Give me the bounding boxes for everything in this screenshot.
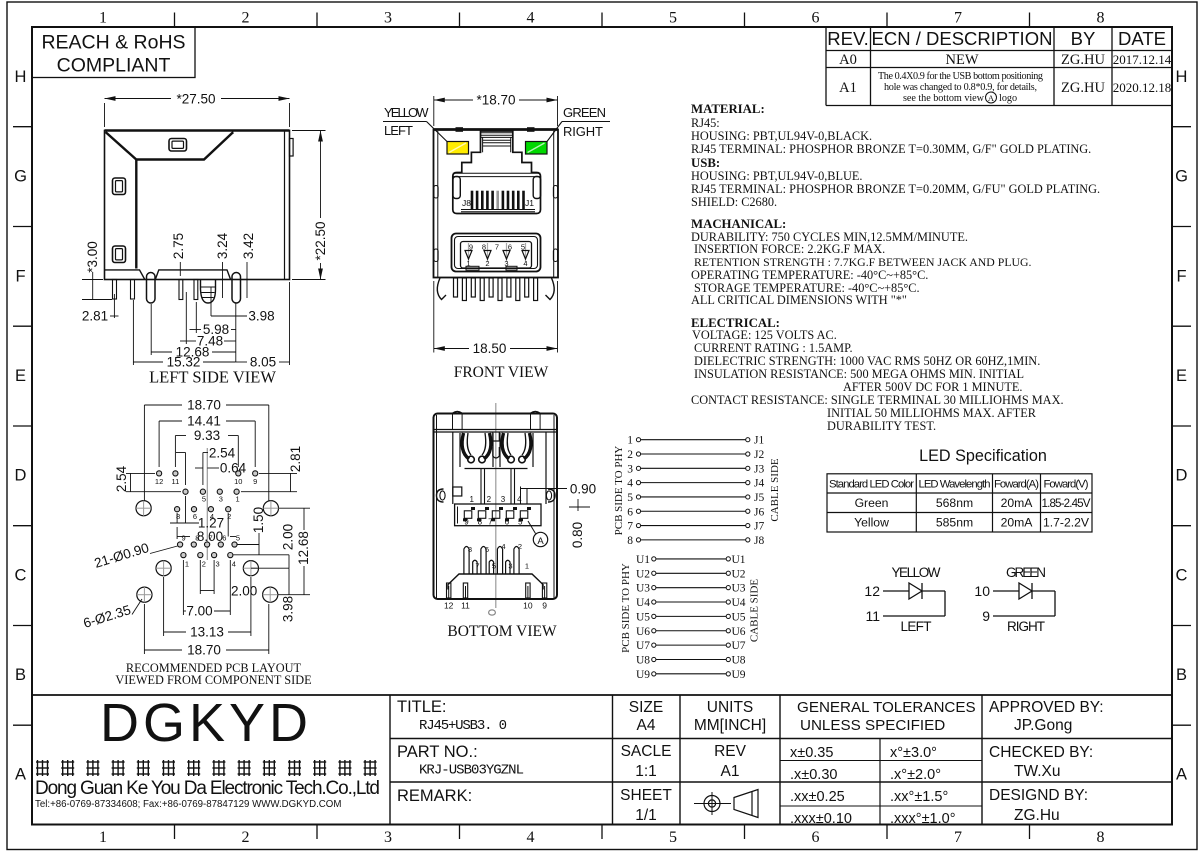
svg-text:J8: J8 [754,535,764,547]
svg-text:2020.12.18: 2020.12.18 [1113,80,1172,95]
svg-text:5: 5 [669,829,677,846]
svg-text:D: D [15,467,27,485]
svg-text:.xxx°±1.0°: .xxx°±1.0° [890,811,956,827]
svg-text:18.70: 18.70 [187,398,221,413]
svg-text:U1: U1 [732,554,746,566]
svg-text:3.98: 3.98 [248,309,274,324]
svg-text:HOUSING: PBT,UL94V-0,BLACK.: HOUSING: PBT,UL94V-0,BLACK. [691,129,872,143]
svg-text:1: 1 [236,495,240,504]
svg-text:2017.12.14: 2017.12.14 [1113,52,1172,67]
svg-text:Foward(A): Foward(A) [994,479,1039,491]
svg-text:A1: A1 [721,763,740,780]
svg-text:G: G [1175,168,1188,186]
svg-text:2.75: 2.75 [171,233,186,259]
svg-text:J1: J1 [754,435,764,447]
svg-text:A0: A0 [839,52,857,68]
svg-text:H: H [15,68,27,86]
svg-text:J5: J5 [754,492,764,504]
svg-text:UNITS: UNITS [707,699,754,716]
svg-text:4: 4 [527,10,535,27]
svg-text:CURRENT RATING : 1.5AMP.: CURRENT RATING : 1.5AMP. [694,341,853,355]
svg-text:U7: U7 [732,640,746,652]
svg-text:ALL CRITICAL DIMENSIONS WITH ": ALL CRITICAL DIMENSIONS WITH "*" [691,293,907,307]
svg-text:1: 1 [99,829,107,846]
svg-text:3.42: 3.42 [241,233,256,259]
svg-text:U9: U9 [732,669,746,681]
svg-text:U8: U8 [732,654,746,666]
svg-text:2: 2 [202,560,206,569]
svg-text:5: 5 [492,562,496,571]
svg-text:11: 11 [865,608,880,624]
svg-text:RETENTION STRENGTH : 7.7KG.F B: RETENTION STRENGTH : 7.7KG.F BETWEEN JAC… [694,255,1032,269]
svg-text:F: F [15,268,25,286]
svg-text:USB:: USB: [691,156,720,170]
svg-text:x±0.35: x±0.35 [790,745,833,761]
svg-text:GREEN: GREEN [1006,565,1046,580]
svg-text:MATERIAL:: MATERIAL: [691,102,765,116]
svg-text:9: 9 [464,518,469,527]
svg-text:DURABILITY TEST.: DURABILITY TEST. [827,419,936,433]
svg-text:J6: J6 [754,506,764,518]
svg-text:10: 10 [523,601,533,611]
svg-text:8: 8 [176,512,180,521]
svg-text:7.00: 7.00 [186,604,212,619]
svg-text:Green: Green [855,496,889,510]
svg-text:A: A [537,536,544,547]
svg-text:9: 9 [542,601,547,611]
svg-text:20mA: 20mA [1001,516,1034,530]
svg-text:PCB SIDE TO PHY: PCB SIDE TO PHY [620,563,632,653]
svg-text:7: 7 [954,10,962,27]
svg-text:9: 9 [253,477,257,486]
svg-text:12.68: 12.68 [296,531,311,565]
svg-text:*3.00: *3.00 [85,241,100,273]
svg-text:U2: U2 [636,568,650,580]
svg-text:REMARK:: REMARK: [397,787,472,805]
svg-text:D: D [1176,467,1188,485]
svg-text:1: 1 [627,435,633,447]
svg-text:AFTER 500V DC FOR 1 MINUTE.: AFTER 500V DC FOR 1 MINUTE. [843,380,1022,394]
svg-text:E: E [1176,367,1187,385]
svg-text:see the bottom view: see the bottom view [903,93,985,104]
svg-text:0.90: 0.90 [570,482,596,497]
svg-text:9: 9 [982,608,990,624]
svg-text:YELLOW: YELLOW [892,565,941,580]
svg-text:6: 6 [193,512,197,521]
svg-text:3.24: 3.24 [215,232,230,259]
svg-text:SHIELD: C2680.: SHIELD: C2680. [691,195,777,209]
svg-text:8: 8 [468,545,472,554]
svg-text:U6: U6 [732,626,746,638]
svg-text:8: 8 [1097,10,1105,27]
svg-text:5: 5 [627,492,633,504]
svg-text:Foward(V): Foward(V) [1044,479,1089,491]
svg-text:8.00: 8.00 [197,529,223,544]
svg-text:11: 11 [461,601,470,611]
svg-text:HOUSING: PBT,UL94V-0,BLUE.: HOUSING: PBT,UL94V-0,BLUE. [691,169,862,183]
svg-text:J7: J7 [754,521,764,533]
svg-text:U4: U4 [732,597,746,609]
svg-text:CABLE SIDE: CABLE SIDE [749,579,761,643]
svg-text:3: 3 [216,560,220,569]
svg-text:585nm: 585nm [936,516,973,530]
svg-text:1: 1 [99,10,107,27]
svg-text:E: E [15,367,26,385]
svg-text:RIGHT: RIGHT [1007,619,1045,634]
svg-text:0.64: 0.64 [220,461,247,476]
svg-text:1:1: 1:1 [635,763,657,780]
svg-text:ZG.HU: ZG.HU [1061,80,1105,96]
svg-text:FRONT VIEW: FRONT VIEW [454,364,549,381]
svg-text:3: 3 [384,10,392,27]
svg-text:J8: J8 [462,198,471,208]
svg-text:ECN / DESCRIPTION: ECN / DESCRIPTION [872,28,1053,49]
svg-text:5: 5 [202,495,206,504]
svg-text:ZG.HU: ZG.HU [1061,52,1105,68]
svg-text:GENERAL TOLERANCES: GENERAL TOLERANCES [797,699,976,716]
svg-text:OPERATING TEMPERATURE: -40°C~+: OPERATING TEMPERATURE: -40°C~+85°C. [691,268,928,282]
svg-text:RJ45 TERMINAL: PHOSPHOR BRONZE: RJ45 TERMINAL: PHOSPHOR BRONZE T=0.30MM,… [691,142,1091,156]
svg-text:J2: J2 [754,449,764,461]
svg-text:TW.Xu: TW.Xu [1014,763,1061,780]
svg-text:Standard LED Color: Standard LED Color [829,479,914,491]
svg-text:20mA: 20mA [1001,496,1034,510]
svg-text:SIZE: SIZE [629,699,663,716]
svg-text:7: 7 [488,518,493,527]
svg-text:1.85-2.45V: 1.85-2.45V [1042,497,1091,510]
svg-text:x°±3.0°: x°±3.0° [890,745,937,761]
svg-text:A1: A1 [839,80,857,96]
svg-text:COMPLIANT: COMPLIANT [57,55,171,77]
svg-text:18.50: 18.50 [473,341,507,356]
svg-text:DIELECTRIC STRENGTH: 1000 VAC: DIELECTRIC STRENGTH: 1000 VAC RMS 50HZ O… [694,354,1040,368]
svg-text:MM[INCH]: MM[INCH] [694,717,766,734]
svg-text:7: 7 [495,243,499,252]
svg-text:U4: U4 [636,597,650,609]
svg-text:*27.50: *27.50 [176,92,215,107]
svg-text:PART NO.:: PART NO.: [397,743,478,761]
svg-text:U2: U2 [732,568,746,580]
svg-text:F: F [1176,268,1186,286]
svg-text:2.81: 2.81 [288,446,303,472]
svg-text:U5: U5 [636,611,650,623]
svg-text:.x°±2.0°: .x°±2.0° [890,767,941,783]
svg-text:REV: REV [714,743,747,760]
svg-text:SHEET: SHEET [620,787,672,804]
svg-text:ZG.Hu: ZG.Hu [1014,807,1060,824]
svg-text:2: 2 [227,512,231,521]
svg-text:Tel:+86-0769-87334608; Fax:+86: Tel:+86-0769-87334608; Fax:+86-0769-8784… [35,799,341,810]
svg-text:CABLE SIDE: CABLE SIDE [769,458,781,522]
svg-text:9: 9 [182,534,186,543]
svg-text:9.33: 9.33 [194,428,220,443]
svg-text:1/1: 1/1 [635,807,657,824]
svg-text:U7: U7 [636,640,650,652]
svg-text:10: 10 [974,583,990,599]
svg-text:SACLE: SACLE [621,743,672,760]
svg-text:U3: U3 [636,583,650,595]
svg-text:U1: U1 [636,554,650,566]
svg-text:LEFT: LEFT [901,619,932,634]
svg-text:1: 1 [525,562,529,571]
svg-text:12: 12 [444,601,454,611]
svg-text:.xx°±1.5°: .xx°±1.5° [890,789,948,805]
svg-text:UNLESS SPECIFIED: UNLESS SPECIFIED [800,717,945,734]
svg-text:1.50: 1.50 [251,507,266,533]
svg-text:A: A [15,766,26,784]
svg-text:2: 2 [485,259,489,268]
svg-text:YELLOW: YELLOW [384,105,429,120]
svg-text:*22.50: *22.50 [313,221,328,260]
svg-text:5: 5 [669,10,677,27]
svg-text:LED Specification: LED Specification [919,447,1047,465]
svg-text:3: 3 [627,463,633,475]
svg-text:2.54: 2.54 [114,465,129,492]
svg-text:6: 6 [485,545,489,554]
svg-text:568nm: 568nm [936,496,973,510]
svg-text:6: 6 [812,829,820,846]
svg-text:8: 8 [1097,829,1105,846]
svg-text:2.81: 2.81 [82,309,108,324]
svg-text:4: 4 [501,542,505,551]
svg-text:0.80: 0.80 [570,522,585,548]
svg-text:APPROVED BY:: APPROVED BY: [989,699,1104,716]
svg-text:BY: BY [1071,28,1096,49]
svg-text:*18.70: *18.70 [476,93,515,108]
svg-text:REACH & RoHS: REACH & RoHS [41,32,185,54]
svg-text:JP.Gong: JP.Gong [1014,717,1072,734]
svg-text:A: A [1176,766,1187,784]
svg-text:2.54: 2.54 [209,446,236,461]
svg-text:2: 2 [487,495,492,504]
svg-text:INITIAL 50 MILLIOHMS MAX. AFTE: INITIAL 50 MILLIOHMS MAX. AFTER [827,406,1037,420]
svg-text:DESIGND BY:: DESIGND BY: [989,787,1088,804]
svg-text:6: 6 [812,10,820,27]
svg-text:A: A [988,93,995,103]
svg-text:REV.: REV. [827,28,868,49]
svg-text:2: 2 [242,829,250,846]
svg-text:H: H [1176,68,1188,86]
svg-text:U6: U6 [636,626,650,638]
svg-text:10: 10 [234,477,242,486]
svg-text:4: 4 [517,495,522,504]
svg-text:DATE: DATE [1118,28,1166,49]
svg-text:6: 6 [627,506,633,518]
svg-text:A4: A4 [637,717,656,734]
svg-text:7: 7 [475,562,479,571]
svg-text:4: 4 [627,478,633,490]
svg-text:4: 4 [232,560,236,569]
svg-text:1: 1 [469,495,474,504]
svg-text:BOTTOM VIEW: BOTTOM VIEW [447,623,557,640]
svg-text:.xxx±0.10: .xxx±0.10 [790,811,852,827]
svg-text:.x±0.30: .x±0.30 [790,767,837,783]
svg-text:5: 5 [518,518,523,527]
svg-text:3: 3 [508,562,512,571]
svg-text:logo: logo [999,93,1017,104]
svg-text:7: 7 [627,521,633,533]
svg-text:DGKYD: DGKYD [100,693,308,753]
svg-text:2.00: 2.00 [281,524,296,550]
svg-text:14.41: 14.41 [187,414,221,429]
svg-text:11: 11 [172,477,180,486]
svg-text:4: 4 [527,829,535,846]
svg-text:The 0.4X0.9 for the USB bottom: The 0.4X0.9 for the USB bottom positioni… [878,71,1043,82]
svg-text:NEW: NEW [945,52,978,68]
svg-text:U9: U9 [636,669,650,681]
svg-text:13.13: 13.13 [190,625,224,640]
svg-text:2: 2 [242,10,250,27]
svg-text:VIEWED FROM COMPONENT SIDE: VIEWED FROM COMPONENT SIDE [115,673,311,687]
svg-text:G: G [14,168,27,186]
svg-text:3.98: 3.98 [281,596,296,622]
svg-text:6: 6 [505,518,510,527]
svg-text:LED Wavelength: LED Wavelength [919,479,991,491]
svg-text:MACHANICAL:: MACHANICAL: [691,217,786,231]
svg-text:GREEN: GREEN [563,105,606,120]
svg-text:LEFT SIDE VIEW: LEFT SIDE VIEW [149,368,276,387]
svg-text:TITLE:: TITLE: [397,698,447,716]
svg-text:J1: J1 [525,198,534,208]
svg-text:1.7-2.2V: 1.7-2.2V [1043,516,1090,530]
svg-text:4: 4 [523,259,527,268]
svg-text:J3: J3 [754,463,764,475]
svg-text:3: 3 [501,495,506,504]
svg-text:U8: U8 [636,654,650,666]
svg-text:2: 2 [518,542,522,551]
svg-text:hole was changed to 0.8*0.9, f: hole was changed to 0.8*0.9, for details… [884,82,1037,93]
svg-text:VOLTAGE: 125 VOLTS AC.: VOLTAGE: 125 VOLTS AC. [692,328,837,342]
svg-text:Dong Guan Ke You Da Electronic: Dong Guan Ke You Da Electronic Tech.Co.,… [35,778,380,799]
svg-text:2: 2 [627,449,633,461]
svg-text:12: 12 [864,583,880,599]
svg-text:12: 12 [155,477,163,486]
svg-text:B: B [1176,666,1187,684]
svg-text:CONTACT RESISTANCE: SINGLE TER: CONTACT RESISTANCE: SINGLE TERMINAL 30 M… [691,393,1064,407]
svg-text:8: 8 [478,518,483,527]
svg-text:KRJ-USB03YGZNL: KRJ-USB03YGZNL [419,763,524,779]
svg-text:5: 5 [236,534,240,543]
svg-text:RJ45+USB3. 0: RJ45+USB3. 0 [419,718,507,734]
svg-text:RJ45:: RJ45: [691,116,720,130]
svg-text:PCB SIDE TO PHY: PCB SIDE TO PHY [613,446,625,536]
svg-text:J4: J4 [754,478,764,490]
svg-text:8: 8 [627,535,633,547]
svg-text:7: 7 [954,829,962,846]
svg-text:U5: U5 [732,611,746,623]
svg-text:C: C [15,567,27,585]
svg-text:Yellow: Yellow [854,516,889,530]
svg-text:RIGHT: RIGHT [563,124,603,139]
svg-text:INSERTION FORCE: 2.2KG.F MAX.: INSERTION FORCE: 2.2KG.F MAX. [694,242,885,256]
svg-text:18.70: 18.70 [187,643,221,658]
svg-text:1: 1 [185,560,189,569]
svg-text:3: 3 [219,495,223,504]
svg-text:U3: U3 [732,583,746,595]
svg-text:RJ45 TERMINAL: PHOSPHOR BRONZE: RJ45 TERMINAL: PHOSPHOR BRONZE T=0.20MM,… [691,182,1100,196]
svg-text:B: B [15,666,26,684]
svg-text:LEFT: LEFT [384,123,413,138]
svg-text:.xx±0.25: .xx±0.25 [790,789,845,805]
svg-text:CHECKED BY:: CHECKED BY: [989,744,1093,761]
svg-text:C: C [1176,567,1188,585]
svg-text:2.00: 2.00 [231,584,257,599]
svg-text:INSULATION RESISTANCE: 500 MEG: INSULATION RESISTANCE: 500 MEGA OHMS MIN… [694,367,1024,381]
svg-text:3: 3 [384,829,392,846]
